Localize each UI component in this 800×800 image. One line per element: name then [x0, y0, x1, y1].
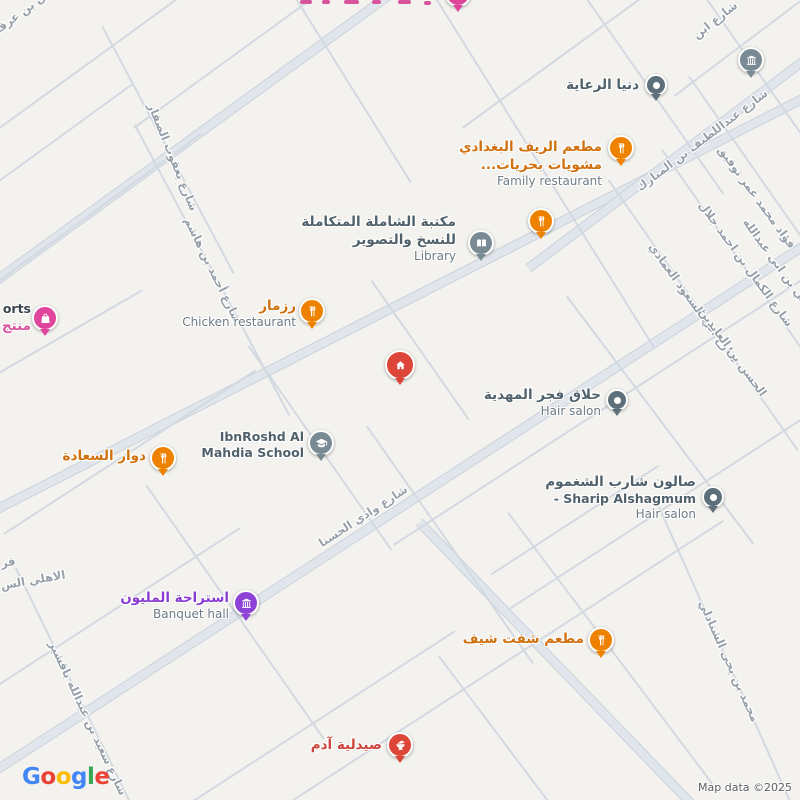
poi-marker[interactable] — [608, 135, 634, 161]
fork-knife-icon — [306, 305, 319, 318]
poi-marker[interactable] — [528, 208, 554, 234]
fork-knife-icon — [595, 634, 608, 647]
poi-layer: مطعم الريف البغداديمشويات بحريات...Famil… — [0, 0, 800, 800]
poi-label-line: رزمار — [182, 297, 296, 315]
poi-label-line: Family restaurant — [459, 174, 602, 189]
poi-label[interactable]: مطعم الريف البغداديمشويات بحريات...Famil… — [459, 138, 602, 189]
poi-label-line: - Sharip Alshagmum — [545, 491, 696, 507]
poi-label[interactable]: صالون شارب الشغموم- Sharip AlshagmumHair… — [545, 473, 696, 522]
poi-label[interactable]: ortsمنتج — [2, 301, 31, 335]
poi-label-line: Banquet hall — [120, 607, 229, 622]
poi-marker[interactable] — [588, 627, 614, 653]
poi-marker[interactable] — [606, 389, 628, 411]
poi-marker[interactable] — [32, 305, 58, 331]
poi-label-line: حلاق فجر المهدية — [484, 386, 601, 404]
google-logo-letter: o — [40, 764, 55, 790]
google-logo-letter: e — [94, 764, 109, 790]
poi-marker[interactable] — [150, 445, 176, 471]
poi-label-line: استراحة المليون — [120, 589, 229, 607]
poi-label-line: orts — [2, 301, 31, 317]
fork-knife-icon — [535, 215, 548, 228]
poi-label[interactable]: دنيا الرعاية — [566, 76, 639, 94]
poi-marker[interactable] — [445, 0, 471, 7]
poi-label-line: صيدلية آدم — [311, 736, 382, 754]
poi-label-line: Hair salon — [545, 507, 696, 522]
building-icon — [745, 54, 758, 67]
poi-label-line: للنسخ والتصوير — [301, 231, 456, 249]
bag-icon — [452, 0, 465, 1]
poi-label-line: Chicken restaurant — [182, 315, 296, 330]
poi-label-line: IbnRoshd Al — [201, 429, 304, 445]
house-icon — [394, 359, 407, 372]
poi-marker[interactable] — [702, 486, 724, 508]
poi-label-line: مشويات بحريات... — [459, 156, 602, 174]
fork-knife-icon — [157, 452, 170, 465]
poi-marker[interactable] — [385, 350, 415, 380]
poi-label-line: مطعم شفت شيف — [463, 630, 584, 648]
poi-label-line: مكتبة الشاملة المتكاملة — [301, 213, 456, 231]
poi-marker[interactable] — [645, 74, 667, 96]
poi-label-line: منتج — [2, 317, 31, 335]
poi-label-line: مطعم الريف البغدادي — [459, 138, 602, 156]
bag-icon — [39, 312, 52, 325]
poi-label[interactable]: مطعم شفت شيف — [463, 630, 584, 648]
poi-label-line: Mahdia School — [201, 445, 304, 461]
poi-label-line: Hair salon — [484, 404, 601, 419]
poi-marker[interactable] — [308, 430, 334, 456]
poi-marker[interactable] — [738, 47, 764, 73]
poi-marker[interactable] — [299, 298, 325, 324]
poi-marker[interactable] — [387, 732, 413, 758]
poi-label[interactable]: IbnRoshd AlMahdia School — [201, 429, 304, 461]
poi-marker[interactable] — [233, 590, 259, 616]
poi-label[interactable]: صيدلية آدم — [311, 736, 382, 754]
google-logo-letter: o — [56, 764, 71, 790]
poi-label[interactable]: استراحة المليونBanquet hall — [120, 589, 229, 622]
poi-marker[interactable] — [468, 230, 494, 256]
map-canvas[interactable]: ان بن عرفطةشارع يعقوب الصفارشارع أحمد بن… — [0, 0, 800, 800]
poi-label-line: صالون شارب الشغموم — [545, 473, 696, 491]
fork-knife-icon — [615, 142, 628, 155]
google-logo[interactable]: Google — [22, 764, 109, 790]
poi-label-line: دنيا الرعاية — [566, 76, 639, 94]
poi-label-line: دوار السعادة — [63, 447, 146, 465]
mortar-icon — [394, 739, 407, 752]
google-logo-letter: G — [22, 764, 40, 790]
cap-icon — [315, 437, 328, 450]
building-icon — [240, 597, 253, 610]
poi-label-line: Library — [301, 249, 456, 264]
poi-label[interactable]: حلاق فجر المهديةHair salon — [484, 386, 601, 419]
poi-label[interactable]: دوار السعادة — [63, 447, 146, 465]
google-logo-letter: g — [71, 764, 87, 790]
map-attribution: Map data ©2025 — [698, 781, 792, 794]
poi-label[interactable]: مكتبة الشاملة المتكاملةللنسخ والتصويرLib… — [301, 213, 456, 264]
poi-label[interactable]: رزمارChicken restaurant — [182, 297, 296, 330]
book-icon — [475, 237, 488, 250]
